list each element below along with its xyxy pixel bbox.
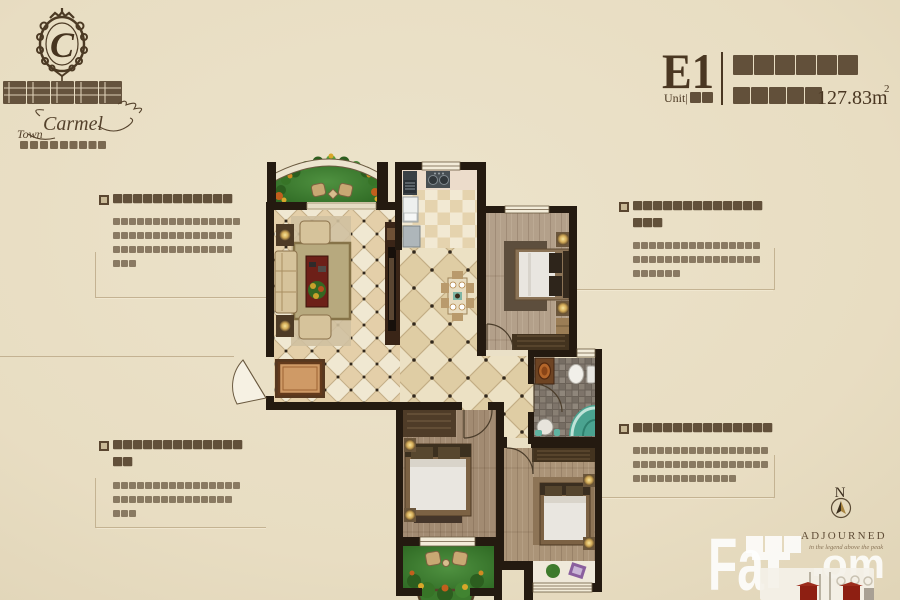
svg-text:Fa: Fa — [708, 523, 765, 600]
svg-text:Carmel: Carmel — [43, 113, 103, 135]
svg-text:2: 2 — [884, 83, 890, 95]
svg-text:C: C — [50, 25, 75, 65]
svg-text:Town: Town — [17, 127, 43, 141]
svg-text:127.83m: 127.83m — [817, 87, 888, 109]
svg-text:Unit|: Unit| — [664, 91, 688, 105]
